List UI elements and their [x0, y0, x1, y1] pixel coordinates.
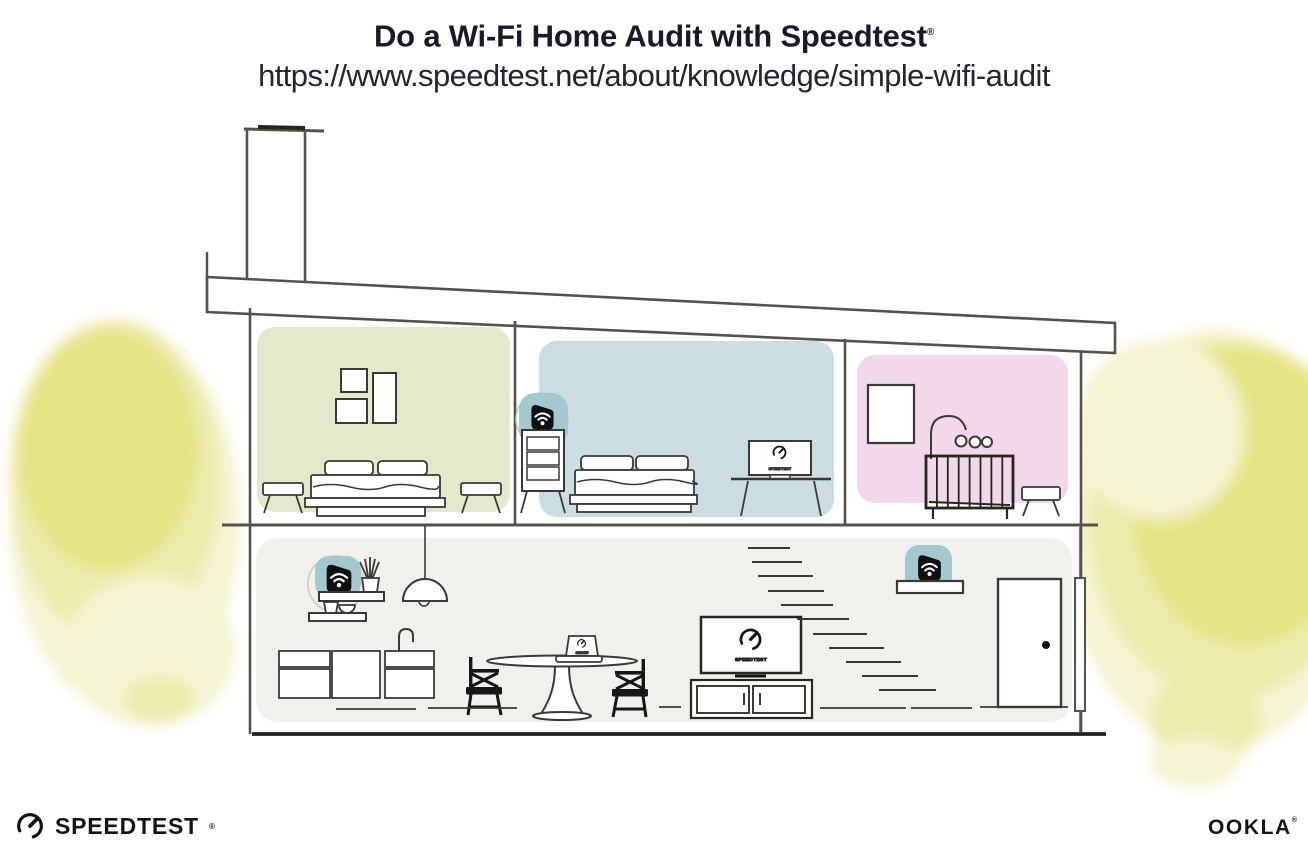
page-title-text: Do a Wi-Fi Home Audit with Speedtest	[374, 18, 927, 53]
tv-screen-label: SPEEDTEST	[735, 657, 767, 663]
ookla-logo: OOKLA ®	[1208, 816, 1297, 840]
tree-left	[10, 320, 240, 725]
media-console	[691, 680, 812, 718]
ookla-logo-text: OOKLA	[1208, 816, 1292, 840]
speedtest-gauge-icon	[14, 810, 46, 842]
tree-right	[1065, 330, 1308, 787]
registered-mark: ®	[209, 822, 215, 831]
tv-area: SPEEDTEST	[691, 617, 812, 718]
picture-frame	[868, 385, 914, 443]
hall-shelf	[897, 581, 963, 593]
chimney	[244, 127, 324, 282]
door-knob	[1042, 641, 1050, 649]
wall-shelf-lower	[309, 613, 366, 621]
article-url[interactable]: https://www.speedtest.net/about/knowledg…	[0, 55, 1308, 97]
wall-shelf-upper	[319, 592, 384, 601]
header: Do a Wi-Fi Home Audit with Speedtest® ht…	[0, 14, 1308, 97]
registered-mark: ®	[1292, 817, 1297, 824]
page-title: Do a Wi-Fi Home Audit with Speedtest®	[0, 14, 1308, 55]
page: SPEEDTEST	[0, 0, 1308, 861]
registered-mark: ®	[927, 27, 934, 38]
front-door	[998, 579, 1061, 707]
wifi-home-audit-illustration: SPEEDTEST	[0, 0, 1308, 861]
bed-blue	[570, 456, 697, 512]
speedtest-logo: SPEEDTEST ®	[14, 810, 215, 842]
monitor-screen-label: SPEEDTEST	[769, 467, 792, 471]
laptop-screen-label: SPEEDTEST	[576, 653, 589, 655]
speedtest-logo-text: SPEEDTEST	[55, 813, 199, 840]
